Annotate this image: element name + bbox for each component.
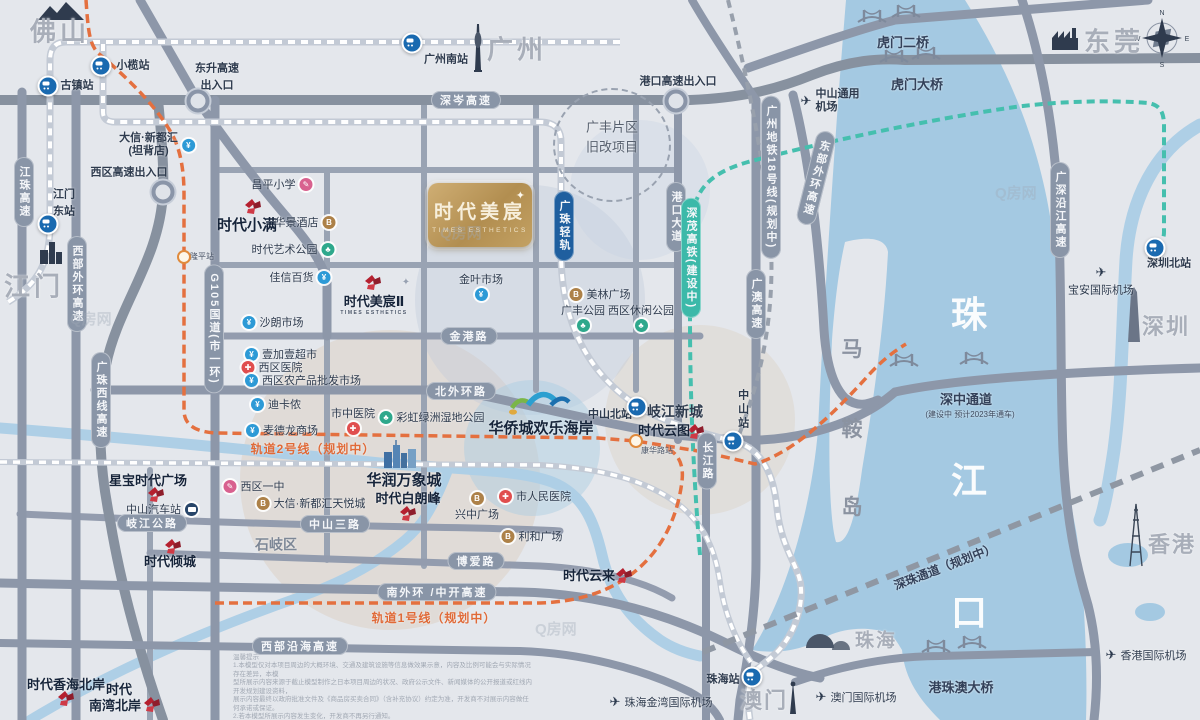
airplane-icon: ✈ [816, 689, 827, 705]
city-label-zhuhai: 珠海 [855, 631, 897, 654]
project-sublabel-meichen2: TIMES ESTHETICS [340, 310, 407, 316]
shop-icon: ¥ [246, 424, 259, 437]
park-icon: ♣ [322, 243, 335, 256]
interchange-dongsheng: 东升高速 出入口 [195, 60, 239, 93]
gangkou-interchange-circle [665, 90, 688, 113]
rail-pill-gz-metro-18: 广州地铁18号线(规划中) [761, 96, 781, 259]
poi-daxin-tianyue: B大信·新都汇天悦城 [257, 495, 366, 511]
station-badge-zhongshanbei [627, 397, 648, 418]
poi-xiqu-produce-market: ¥西区农产品批发市场 [245, 372, 361, 388]
macau-tower-icon [790, 682, 796, 714]
complex-label-mixc: 华润万象城 [366, 472, 441, 490]
road-pill-shencen-expwy: 深岑高速 [431, 91, 501, 109]
mall-icon: B [502, 530, 515, 543]
dongguan-factory-icon [1052, 28, 1078, 50]
location-map: N E S W 佛山 广州 江门 东莞 深圳 香港 珠海 澳门 珠 江 口 马 … [0, 0, 1200, 720]
poi-jinye-market: 金叶市场¥ [459, 271, 503, 301]
school-icon: ✎ [300, 178, 313, 191]
disclaimer-line: 展示内容最终以政府批准文件及《商品房买卖合同》（含补充协议）约定为准，开发商不对… [233, 696, 535, 713]
poi-decathlon: ¥迪卡侬 [251, 396, 301, 412]
poi-rainbow-wetland-park: ♣彩虹绿洲湿地公园 [380, 409, 485, 425]
poi-jiaxin-dept-store: 佳信百货¥ [270, 269, 331, 285]
airplane-icon: ✈ [1106, 647, 1117, 663]
road-pill-guangshen-yanjiang-expwy: 广深沿江高速 [1050, 162, 1070, 258]
mall-icon: B [570, 288, 583, 301]
island-name-char-2: 鞍 [842, 413, 863, 443]
road-pill-nanwaihuan-zhongkai: 南外环 /中开高速 [377, 583, 496, 601]
compass-s: S [1160, 62, 1165, 69]
watermark: Q房网 [995, 182, 1037, 203]
road-pill-qijiang-hwy: 岐江公路 [117, 514, 187, 532]
disclaimer-line: 型所展示内容来源于截止模型制作之日本项目周边的状况、政府公示文件、新闻媒体的公开… [233, 679, 535, 696]
hospital-icon: ✚ [499, 490, 512, 503]
station-label-jiangmendong: 江门 东站 [53, 186, 75, 219]
project-label-yunlai: 时代云来 [563, 568, 615, 584]
station-label-shenzhenbei: 深圳北站 [1147, 257, 1191, 270]
road-pill-zhongshan3-rd: 中山三路 [300, 515, 370, 533]
station-badge-jiangmendong [38, 214, 59, 235]
road-pill-guangao-expwy: 广澳高速 [746, 269, 766, 339]
mall-icon: B [257, 497, 270, 510]
watermark: Q房网 [70, 308, 112, 329]
city-label-hongkong: 香港 [1148, 532, 1196, 558]
road-pill-jiangzhu-expwy: 江珠高速 [14, 157, 34, 227]
road-pill-xibu-yanhai-expwy: 西部沿海高速 [252, 637, 348, 655]
hotel-icon: B [323, 216, 336, 229]
interchange-gangkou: 港口高速出入口 [640, 75, 717, 88]
city-label-macau: 澳门 [740, 688, 788, 714]
watermark: Q房网 [535, 618, 577, 639]
city-label-shenzhen: 深圳 [1142, 314, 1190, 340]
island-name-char-1: 马 [842, 333, 863, 363]
project-label-bailangfeng: 时代白朗峰 [375, 491, 440, 507]
jiangmen-building-icon [40, 242, 62, 264]
station-badge-guangzhounan [402, 33, 423, 54]
metro-line1-label: 轨道1号线（规划中） [372, 611, 497, 625]
xiqu-interchange-circle [152, 181, 175, 204]
complex-label-oct-harbour: 华侨城欢乐海岸 [488, 420, 593, 438]
station-label-zhongshanbei: 中山北站 [588, 408, 632, 421]
station-label-zhuhai: 珠海站 [707, 673, 740, 686]
station-label-kanghualu: 康华路站 [641, 446, 673, 456]
city-label-jiangmen: 江门 [4, 271, 64, 302]
station-badge-longping [177, 250, 191, 264]
watermark: Q房网 [440, 222, 482, 243]
poi-xingzhong-plaza: B兴中广场 [455, 492, 499, 522]
poi-changping-primary: 昌平小学✎ [252, 176, 313, 192]
station-label-guzhen: 古镇站 [61, 79, 94, 92]
sea-name-char-3: 口 [951, 584, 987, 636]
school-icon: ✎ [224, 480, 237, 493]
disclaimer-line: 1.本模型仅对本项目周边的大概环境、交通及建筑设施等信息做效果示意，内容及比例可… [233, 662, 535, 679]
metro-line2-label: 轨道2号线（规划中） [251, 442, 376, 456]
station-badge-kanghualu [629, 434, 643, 448]
project-label-nanwan-1: 时代 [106, 682, 132, 698]
airplane-icon: ✈ [1096, 265, 1107, 281]
station-badge-zhongshan [723, 431, 744, 452]
shop-icon: ¥ [251, 398, 264, 411]
road-pill-boai-rd: 博爱路 [448, 552, 505, 570]
city-label-foshan: 佛山 [30, 16, 90, 47]
poi-lihe-plaza: B利和广场 [502, 528, 563, 544]
station-label-zhongshan: 中山站 [735, 389, 748, 431]
dongsheng-interchange-circle [187, 90, 210, 113]
airport-zhongshan-general: ✈ 中山通用 机场 [801, 88, 860, 114]
sparkle-icon: ✦ [516, 189, 525, 202]
project-card-title: 时代美宸 [434, 197, 526, 224]
sparkle-icon: ✦ [402, 277, 410, 289]
compass-e: E [1185, 36, 1190, 43]
bridge-label-humen: 虎门大桥 [891, 77, 943, 93]
poi-times-art-park: 时代艺术公园♣ [252, 241, 335, 257]
station-badge-shenzhenbei [1145, 238, 1166, 259]
station-badge-guzhen [38, 76, 59, 97]
zhuhai-opera-icon [806, 634, 850, 650]
city-label-dongguan: 东莞 [1084, 26, 1144, 57]
project-label-xianghai: 时代香海北岸 [27, 677, 105, 693]
station-badge-zhuhai [742, 667, 763, 688]
airport-baoan: ✈ 宝安国际机场 [1068, 265, 1134, 298]
shop-icon: ¥ [318, 271, 331, 284]
bridge-label-hzmb: 港珠澳大桥 [928, 680, 993, 696]
island-name-char-3: 岛 [842, 491, 863, 521]
shop-icon: ¥ [475, 288, 488, 301]
airport-zhuhai-jinwan: ✈ 珠海金湾国际机场 [610, 694, 713, 710]
project-label-meichen2: 时代美宸Ⅱ [344, 294, 405, 310]
area-shiqi-district: 石岐区 [255, 537, 297, 554]
bridge-label-shenzhong: 深中通道 [940, 392, 992, 408]
canton-tower-icon [474, 24, 482, 72]
rail-pill-shenmao-hsr: 深茂高铁(建设中) [681, 198, 701, 318]
shop-icon: ¥ [245, 374, 258, 387]
poi-xiqu-no1-middle: ✎西区一中 [224, 478, 285, 494]
hospital-icon: ✚ [347, 422, 360, 435]
poi-meilin-plaza: B美林广场 [570, 286, 631, 302]
project-label-yuntu: 时代云图 [638, 423, 690, 439]
road-pill-jingang-rd: 金港路 [441, 327, 498, 345]
poi-shizhong-hospital: 市中医院✚ [331, 405, 375, 435]
road-pill-g105: G105国道(市一环) [204, 264, 224, 393]
poi-shalang-market: ¥沙朗市场 [243, 314, 304, 330]
sea-name-char-2: 江 [951, 452, 987, 504]
station-label-guangzhounan: 广州南站 [424, 53, 468, 66]
poi-metro-mall: ¥麦德龙商场 [246, 422, 318, 438]
bridge-label-humen2: 虎门二桥 [877, 35, 929, 51]
mall-icon: B [471, 492, 484, 505]
area-qijiang-newtown: 岐江新城 [647, 404, 703, 421]
station-badge-xiaolan [91, 56, 112, 77]
road-pill-beiwaihuan-rd: 北外环路 [426, 382, 496, 400]
airplane-icon: ✈ [610, 694, 621, 710]
disclaimer-block: 温馨提示 1.本模型仅对本项目周边的大概环境、交通及建筑设施等信息做效果示意，内… [233, 654, 535, 720]
times-logo-meichen2 [365, 275, 381, 290]
poi-xiqu-leisure-park: 西区休闲公园♣ [608, 302, 674, 332]
airport-macau: ✈ 澳门国际机场 [816, 689, 897, 705]
park-icon: ♣ [380, 411, 393, 424]
project-label-xingbao-plaza: 星宝时代广场 [109, 473, 187, 489]
poi-daxin-tanbei: 大信·新都汇 (坦背店) ¥ [119, 132, 195, 158]
bus-icon [185, 503, 198, 516]
project-label-nanwan-2: 南湾北岸 [89, 698, 141, 714]
poi-huajing-hotel: 华景酒店B [275, 214, 336, 230]
compass-n: N [1159, 10, 1164, 17]
road-pill-changjiang-rd: 长江路 [697, 433, 717, 490]
shop-icon: ¥ [243, 316, 256, 329]
station-label-longping: 隆平站 [190, 252, 214, 262]
project-label-xiaoman: 时代小满 [217, 217, 277, 235]
poi-guangfeng-park: 广丰公园♣ [561, 302, 605, 332]
airport-hongkong: ✈ 香港国际机场 [1106, 647, 1187, 663]
area-guangfeng-redev: 广丰片区 旧改项目 [586, 117, 638, 156]
interchange-xiqu: 西区高速出入口 [91, 166, 168, 179]
city-label-guangzhou: 广州 [487, 34, 547, 65]
project-label-qingcheng: 时代倾城 [144, 554, 196, 570]
airplane-icon: ✈ [801, 93, 812, 109]
road-pill-guangzhu-xixian-expwy: 广珠西线高速 [91, 352, 111, 448]
rail-pill-guangzhu-light-rail: 广珠轻轨 [554, 191, 574, 261]
bridge-sublabel-shenzhong: (建设中 预计2023年通车) [925, 410, 1014, 420]
shop-icon: ¥ [182, 139, 195, 152]
station-label-xiaolan: 小榄站 [117, 59, 150, 72]
times-logo-xiaoman [245, 199, 261, 214]
disclaimer-line: 2.若本模型所展示内容发生变化，开发商不再另行通知。 [233, 713, 535, 720]
sea-name-char-1: 珠 [951, 286, 987, 338]
park-icon: ♣ [577, 319, 590, 332]
poi-peoples-hospital: ✚市人民医院 [499, 488, 571, 504]
park-icon: ♣ [635, 319, 648, 332]
